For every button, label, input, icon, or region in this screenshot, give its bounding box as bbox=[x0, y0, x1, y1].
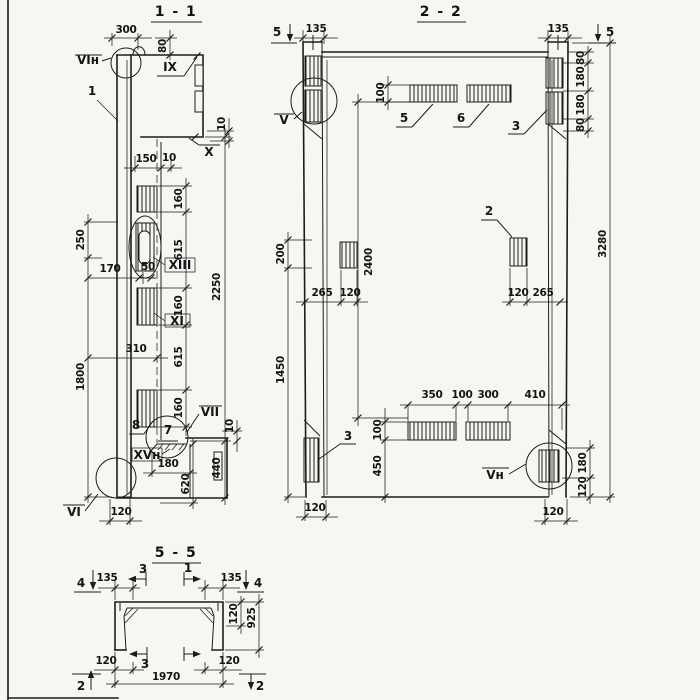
dim-120-bl: 120 bbox=[304, 502, 325, 514]
dim-440: 440 bbox=[211, 457, 223, 478]
rebar-marker-3-bot: 3 bbox=[141, 657, 149, 671]
dim-925: 925 bbox=[246, 607, 258, 628]
callout-3-top: 3 bbox=[512, 119, 520, 133]
dim-300: 300 bbox=[477, 389, 498, 401]
dim-170: 170 bbox=[99, 263, 120, 275]
callout-2: 2 bbox=[485, 204, 493, 218]
dim-10-top: 10 bbox=[216, 117, 228, 131]
dim-250: 250 bbox=[75, 229, 87, 250]
dim-120-bl: 120 bbox=[95, 655, 116, 667]
dim-100-mid: 100 bbox=[451, 389, 472, 401]
dim-350: 350 bbox=[421, 389, 442, 401]
dim-135-left: 135 bbox=[96, 572, 117, 584]
dim-120-right-bot: 120 bbox=[577, 476, 589, 497]
section-1-1-title: 1 - 1 bbox=[155, 4, 198, 20]
ref-label-xi: XI bbox=[170, 314, 184, 328]
dim-180a: 180 bbox=[575, 66, 587, 87]
dim-180: 180 bbox=[157, 458, 178, 470]
dim-450: 450 bbox=[372, 455, 384, 476]
ref-label-x: X bbox=[204, 145, 214, 159]
dim-80b: 80 bbox=[575, 118, 587, 132]
dim-180-right: 180 bbox=[577, 452, 589, 473]
callout-8: 8 bbox=[132, 418, 140, 432]
sheet-background bbox=[0, 0, 700, 700]
dim-10-shelf: 10 bbox=[224, 419, 236, 433]
dim-10a: 10 bbox=[162, 152, 176, 164]
detail-label-vi: VI bbox=[67, 505, 81, 519]
dim-80: 80 bbox=[157, 39, 169, 53]
dim-310: 310 bbox=[125, 343, 146, 355]
ref-label-xv-n: XVн bbox=[134, 448, 161, 462]
section-5-5-title: 5 - 5 bbox=[155, 545, 198, 561]
dim-1970: 1970 bbox=[152, 671, 180, 683]
ref-label-xiii: XIII bbox=[169, 258, 192, 272]
dim-265-left: 265 bbox=[311, 287, 332, 299]
engineering-drawing-sheet: 1 - 1 bbox=[0, 0, 700, 700]
dim-80a: 80 bbox=[575, 51, 587, 65]
section-marker-4-left: 4 bbox=[77, 576, 85, 590]
ref-label-vii: VII bbox=[201, 405, 219, 419]
dim-300: 300 bbox=[115, 24, 136, 36]
dim-50: 50 bbox=[141, 261, 155, 273]
section-2-2-title: 2 - 2 bbox=[420, 4, 463, 20]
dim-135-right: 135 bbox=[547, 23, 568, 35]
dim-135-left: 135 bbox=[305, 23, 326, 35]
rebar-marker-1-top: 1 bbox=[184, 561, 192, 575]
dim-120-vert: 120 bbox=[228, 603, 240, 624]
callout-1: 1 bbox=[88, 84, 96, 98]
section-marker-2-right: 2 bbox=[256, 679, 264, 693]
callout-7: 7 bbox=[164, 423, 172, 437]
dim-1800: 1800 bbox=[75, 363, 87, 391]
dim-160c: 160 bbox=[173, 397, 185, 418]
section-marker-5-left: 5 bbox=[273, 25, 281, 39]
ref-label-ix: IX bbox=[163, 60, 177, 74]
dim-2400: 2400 bbox=[363, 248, 375, 276]
dim-180b: 180 bbox=[575, 94, 587, 115]
callout-3-bot: 3 bbox=[344, 429, 352, 443]
section-marker-2-left: 2 bbox=[77, 679, 85, 693]
detail-label-v-n: Vн bbox=[486, 468, 504, 482]
callout-6: 6 bbox=[457, 111, 465, 125]
dim-120-right: 120 bbox=[507, 287, 528, 299]
section-marker-4-right: 4 bbox=[254, 576, 262, 590]
dim-100-bot: 100 bbox=[372, 419, 384, 440]
dim-100-top: 100 bbox=[375, 82, 387, 103]
dim-150: 150 bbox=[135, 153, 156, 165]
dim-1450: 1450 bbox=[275, 356, 287, 384]
dim-265-right: 265 bbox=[532, 287, 553, 299]
detail-label-v: V bbox=[279, 113, 289, 127]
dim-135-right: 135 bbox=[220, 572, 241, 584]
dim-120-br: 120 bbox=[218, 655, 239, 667]
dim-160a: 160 bbox=[173, 188, 185, 209]
dim-120-left: 120 bbox=[339, 287, 360, 299]
dim-200: 200 bbox=[275, 243, 287, 264]
dim-120-br: 120 bbox=[542, 506, 563, 518]
dim-2250: 2250 bbox=[211, 273, 223, 301]
dim-410: 410 bbox=[524, 389, 545, 401]
callout-5: 5 bbox=[400, 111, 408, 125]
dim-3280: 3280 bbox=[597, 230, 609, 258]
dim-620: 620 bbox=[180, 473, 192, 494]
dim-615b: 615 bbox=[173, 346, 185, 367]
dim-120: 120 bbox=[110, 506, 131, 518]
